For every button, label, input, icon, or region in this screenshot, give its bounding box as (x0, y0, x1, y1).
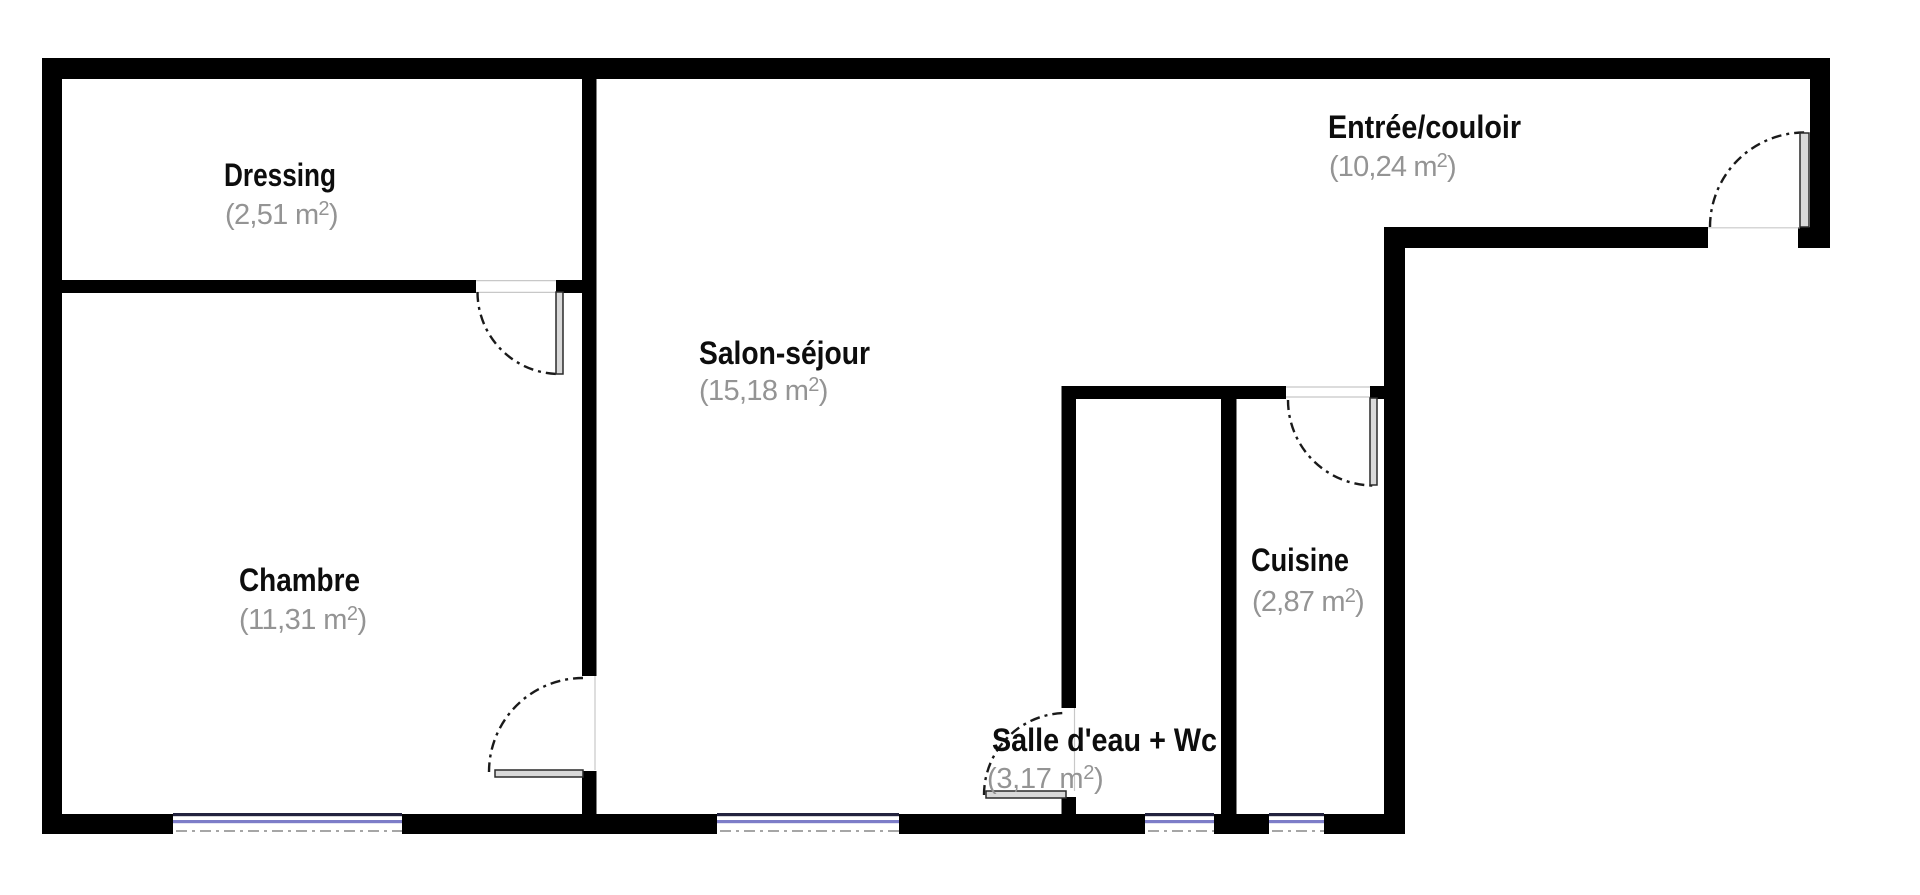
svg-text:Chambre: Chambre (239, 562, 360, 598)
svg-text:Entrée/couloir: Entrée/couloir (1328, 109, 1521, 145)
svg-text:Salon-séjour: Salon-séjour (699, 335, 870, 371)
svg-text:Dressing: Dressing (224, 157, 336, 193)
svg-text:Cuisine: Cuisine (1251, 542, 1349, 578)
svg-text:Salle d'eau + Wc: Salle d'eau + Wc (992, 722, 1217, 758)
